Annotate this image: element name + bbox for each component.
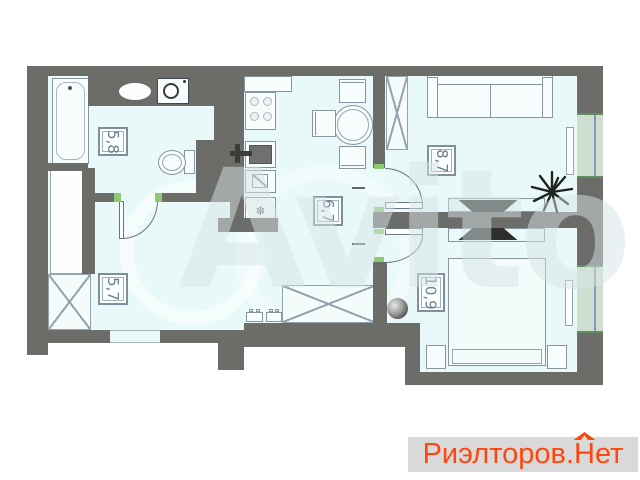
kitchen-faucet-icon <box>230 151 252 156</box>
plant-icon <box>529 169 575 215</box>
dishwasher-symbol-icon <box>252 174 268 188</box>
window-frame-line <box>594 267 596 331</box>
room-area-label-kitchen: 6,7 <box>313 196 343 226</box>
shoe-rack-bump <box>249 309 253 312</box>
door-jamb-marker <box>374 164 384 169</box>
sofa-armrest <box>542 77 553 118</box>
room-area-value: 10,9 <box>422 276 440 309</box>
radiator-icon <box>565 280 573 326</box>
entrance-opening <box>110 330 160 343</box>
wardrobe-icon <box>386 76 408 150</box>
washing-machine-drum-icon <box>163 83 179 99</box>
wardrobe-icon <box>48 274 91 330</box>
door-jamb-marker <box>155 193 162 202</box>
footer-logo-suffix: ет <box>595 438 623 471</box>
bathtub-inner-icon <box>56 82 85 160</box>
bed-headboard <box>452 349 542 364</box>
shoe-rack-icon <box>266 312 282 322</box>
shoe-rack-icon <box>246 312 263 322</box>
wall-top <box>27 66 603 76</box>
kitchen-sink-basin-icon <box>249 145 272 164</box>
dining-table-inner-ring <box>337 109 369 141</box>
room-area-value: 8,7 <box>432 149 450 173</box>
wall-bath-bottom-right <box>157 193 214 202</box>
wall-right-upper <box>577 66 603 113</box>
door-jamb-marker <box>374 229 384 234</box>
radiator-icon <box>566 127 574 175</box>
room-area-label-hallway: 5,7 <box>98 273 128 305</box>
shoe-rack-bump <box>275 309 279 312</box>
footer-logo-letter: Н <box>574 438 595 470</box>
room-area-value: 6,7 <box>319 199 337 223</box>
stove-burner-icon <box>263 97 272 106</box>
window-bedroom-icon <box>577 265 603 333</box>
window-living-icon <box>577 113 603 178</box>
kitchen-counter-strip <box>244 76 292 92</box>
kitchen-faucet-icon <box>235 144 240 163</box>
chair-back-line <box>315 112 316 135</box>
bathroom-sink-icon <box>119 83 151 100</box>
wall-kitchen-bottom <box>218 218 278 232</box>
chair-back-line <box>341 165 364 166</box>
bathtub-drain-icon <box>68 86 72 90</box>
wall-dining-living <box>373 66 385 168</box>
room-area-label-living: 8,7 <box>427 145 456 176</box>
stove-burner-icon <box>250 97 259 106</box>
bathroom-countertop <box>88 76 214 106</box>
pouf-icon <box>387 298 408 319</box>
wall-right-middle <box>577 178 603 265</box>
door-jamb-marker <box>374 207 384 212</box>
shoe-rack-bump <box>256 309 260 312</box>
washing-machine-dial-icon <box>183 80 186 83</box>
wall-bedroom-bottom <box>405 372 603 385</box>
room-area-label-bathroom: 5,8 <box>98 127 128 156</box>
wall-shaft-side <box>82 168 95 274</box>
window-frame-line <box>594 115 596 176</box>
sofa-cushion-divider <box>490 84 491 117</box>
wardrobe-icon <box>282 285 375 323</box>
stove-icon <box>245 92 276 130</box>
stove-burner-icon <box>250 112 259 121</box>
sofa-armrest <box>427 77 438 118</box>
door-jamb-marker <box>114 193 121 202</box>
nightstand-icon <box>426 345 446 369</box>
wall-bottom-right <box>244 323 420 347</box>
door-jamb-marker <box>374 257 384 262</box>
wall-left <box>27 66 48 355</box>
nightstand-icon <box>547 345 567 369</box>
room-area-label-bedroom: 10,9 <box>417 273 445 312</box>
stove-burner-icon <box>263 112 272 121</box>
room-area-value: 5,8 <box>104 130 122 154</box>
shoe-rack-bump <box>269 309 273 312</box>
wall-bottom-left <box>48 330 110 343</box>
footer-logo-house-letter: Н <box>574 438 595 471</box>
chair-back-line <box>341 82 364 83</box>
snowflake-icon: ❄ <box>255 204 265 218</box>
floor-plan-screenshot: ❄ <box>0 0 640 480</box>
bedroom-door-leaf <box>385 228 423 235</box>
wall-hall-bedroom <box>373 262 387 330</box>
toilet-seat-icon <box>162 154 182 171</box>
wall-bath-kitchen-upper <box>214 76 244 140</box>
threshold-dash <box>352 243 365 245</box>
threshold-dash <box>352 187 365 189</box>
room-area-value: 5,7 <box>104 277 122 301</box>
wall-stub-exterior <box>218 330 244 370</box>
footer-logo: Риэлторов.Нет <box>408 437 638 472</box>
footer-logo-prefix: Риэлторов. <box>423 438 574 471</box>
